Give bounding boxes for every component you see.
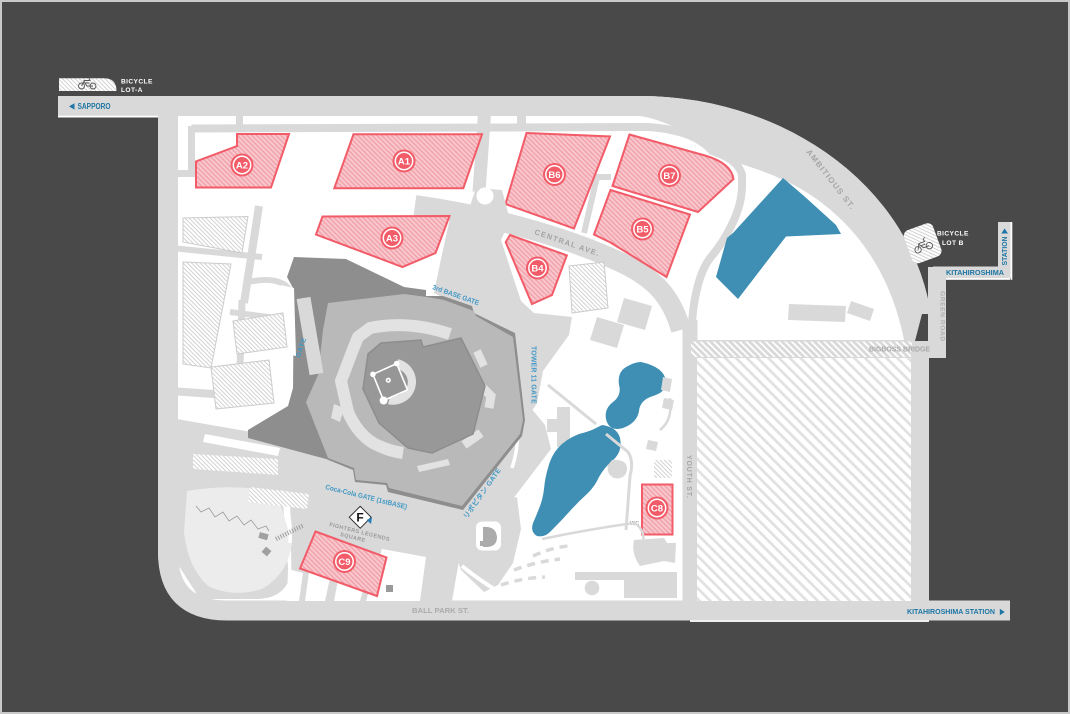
svg-text:STATION: STATION	[1001, 236, 1009, 265]
svg-text:C8: C8	[651, 503, 663, 514]
svg-text:BICYCLE: BICYCLE	[937, 231, 969, 238]
svg-text:A1: A1	[398, 156, 411, 167]
svg-text:A3: A3	[386, 233, 398, 244]
svg-text:B7: B7	[663, 171, 675, 182]
svg-text:LOT B: LOT B	[942, 240, 964, 247]
svg-text:KITAHIROSHIMA: KITAHIROSHIMA	[946, 268, 1005, 277]
svg-text:B5: B5	[636, 224, 649, 235]
svg-text:BICYCLE: BICYCLE	[121, 79, 153, 86]
svg-text:YOUTH ST.: YOUTH ST.	[685, 455, 692, 499]
svg-text:C9: C9	[338, 557, 350, 568]
svg-text:B6: B6	[548, 170, 560, 181]
svg-text:TOWER 11 GATE: TOWER 11 GATE	[530, 346, 537, 404]
svg-text:KITAHIROSHIMA STATION: KITAHIROSHIMA STATION	[907, 607, 995, 616]
svg-text:LOT-A: LOT-A	[121, 87, 143, 94]
svg-text:BALL PARK ST.: BALL PARK ST.	[412, 606, 469, 615]
svg-text:BIGBOSS BRIDGE: BIGBOSS BRIDGE	[869, 347, 930, 354]
svg-text:A2: A2	[236, 160, 248, 171]
svg-text:F: F	[356, 511, 363, 525]
svg-text:SAPPORO: SAPPORO	[78, 102, 111, 111]
svg-text:GREEN ROAD: GREEN ROAD	[939, 291, 946, 342]
svg-text:B4: B4	[531, 263, 544, 274]
